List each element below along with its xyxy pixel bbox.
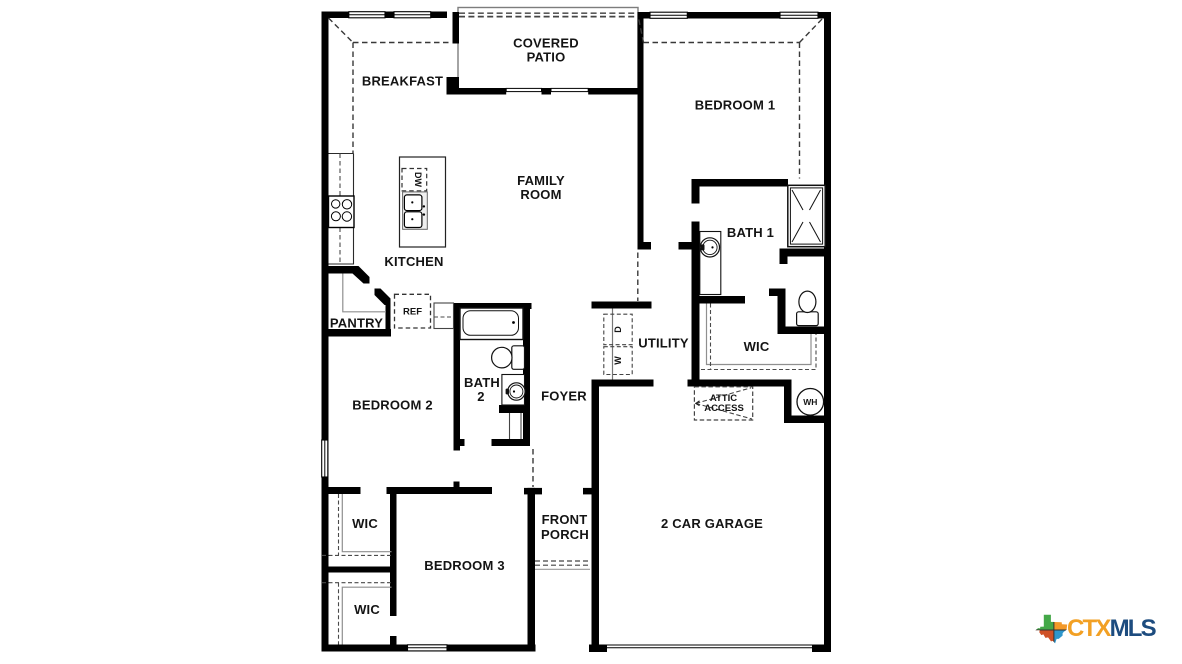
svg-text:BEDROOM 3: BEDROOM 3 xyxy=(424,558,505,573)
svg-text:ROOM: ROOM xyxy=(520,187,561,202)
svg-text:2: 2 xyxy=(477,389,484,404)
svg-text:ACCESS: ACCESS xyxy=(704,403,744,414)
svg-text:COVERED: COVERED xyxy=(513,36,579,51)
svg-text:REF: REF xyxy=(403,307,422,318)
svg-text:D: D xyxy=(613,326,623,333)
svg-text:PORCH: PORCH xyxy=(541,527,589,542)
svg-text:FAMILY: FAMILY xyxy=(517,173,565,188)
svg-text:WIC: WIC xyxy=(352,516,378,531)
svg-text:BEDROOM 1: BEDROOM 1 xyxy=(695,98,776,113)
svg-text:PATIO: PATIO xyxy=(527,50,566,65)
svg-text:BREAKFAST: BREAKFAST xyxy=(362,74,443,89)
svg-text:CTXMLS: CTXMLS xyxy=(1067,615,1157,642)
svg-text:FRONT: FRONT xyxy=(542,512,588,527)
svg-text:BATH 1: BATH 1 xyxy=(727,225,774,240)
svg-text:WH: WH xyxy=(803,397,817,407)
svg-text:2 CAR GARAGE: 2 CAR GARAGE xyxy=(661,516,763,531)
svg-text:PANTRY: PANTRY xyxy=(330,316,383,331)
svg-text:WIC: WIC xyxy=(354,602,380,617)
svg-text:WIC: WIC xyxy=(744,339,770,354)
svg-text:UTILITY: UTILITY xyxy=(638,336,689,351)
svg-text:W: W xyxy=(613,356,623,365)
svg-text:BATH: BATH xyxy=(464,375,500,390)
svg-text:FOYER: FOYER xyxy=(541,388,587,403)
svg-text:KITCHEN: KITCHEN xyxy=(384,254,443,269)
svg-text:DW: DW xyxy=(413,172,423,187)
svg-text:BEDROOM 2: BEDROOM 2 xyxy=(352,398,433,413)
